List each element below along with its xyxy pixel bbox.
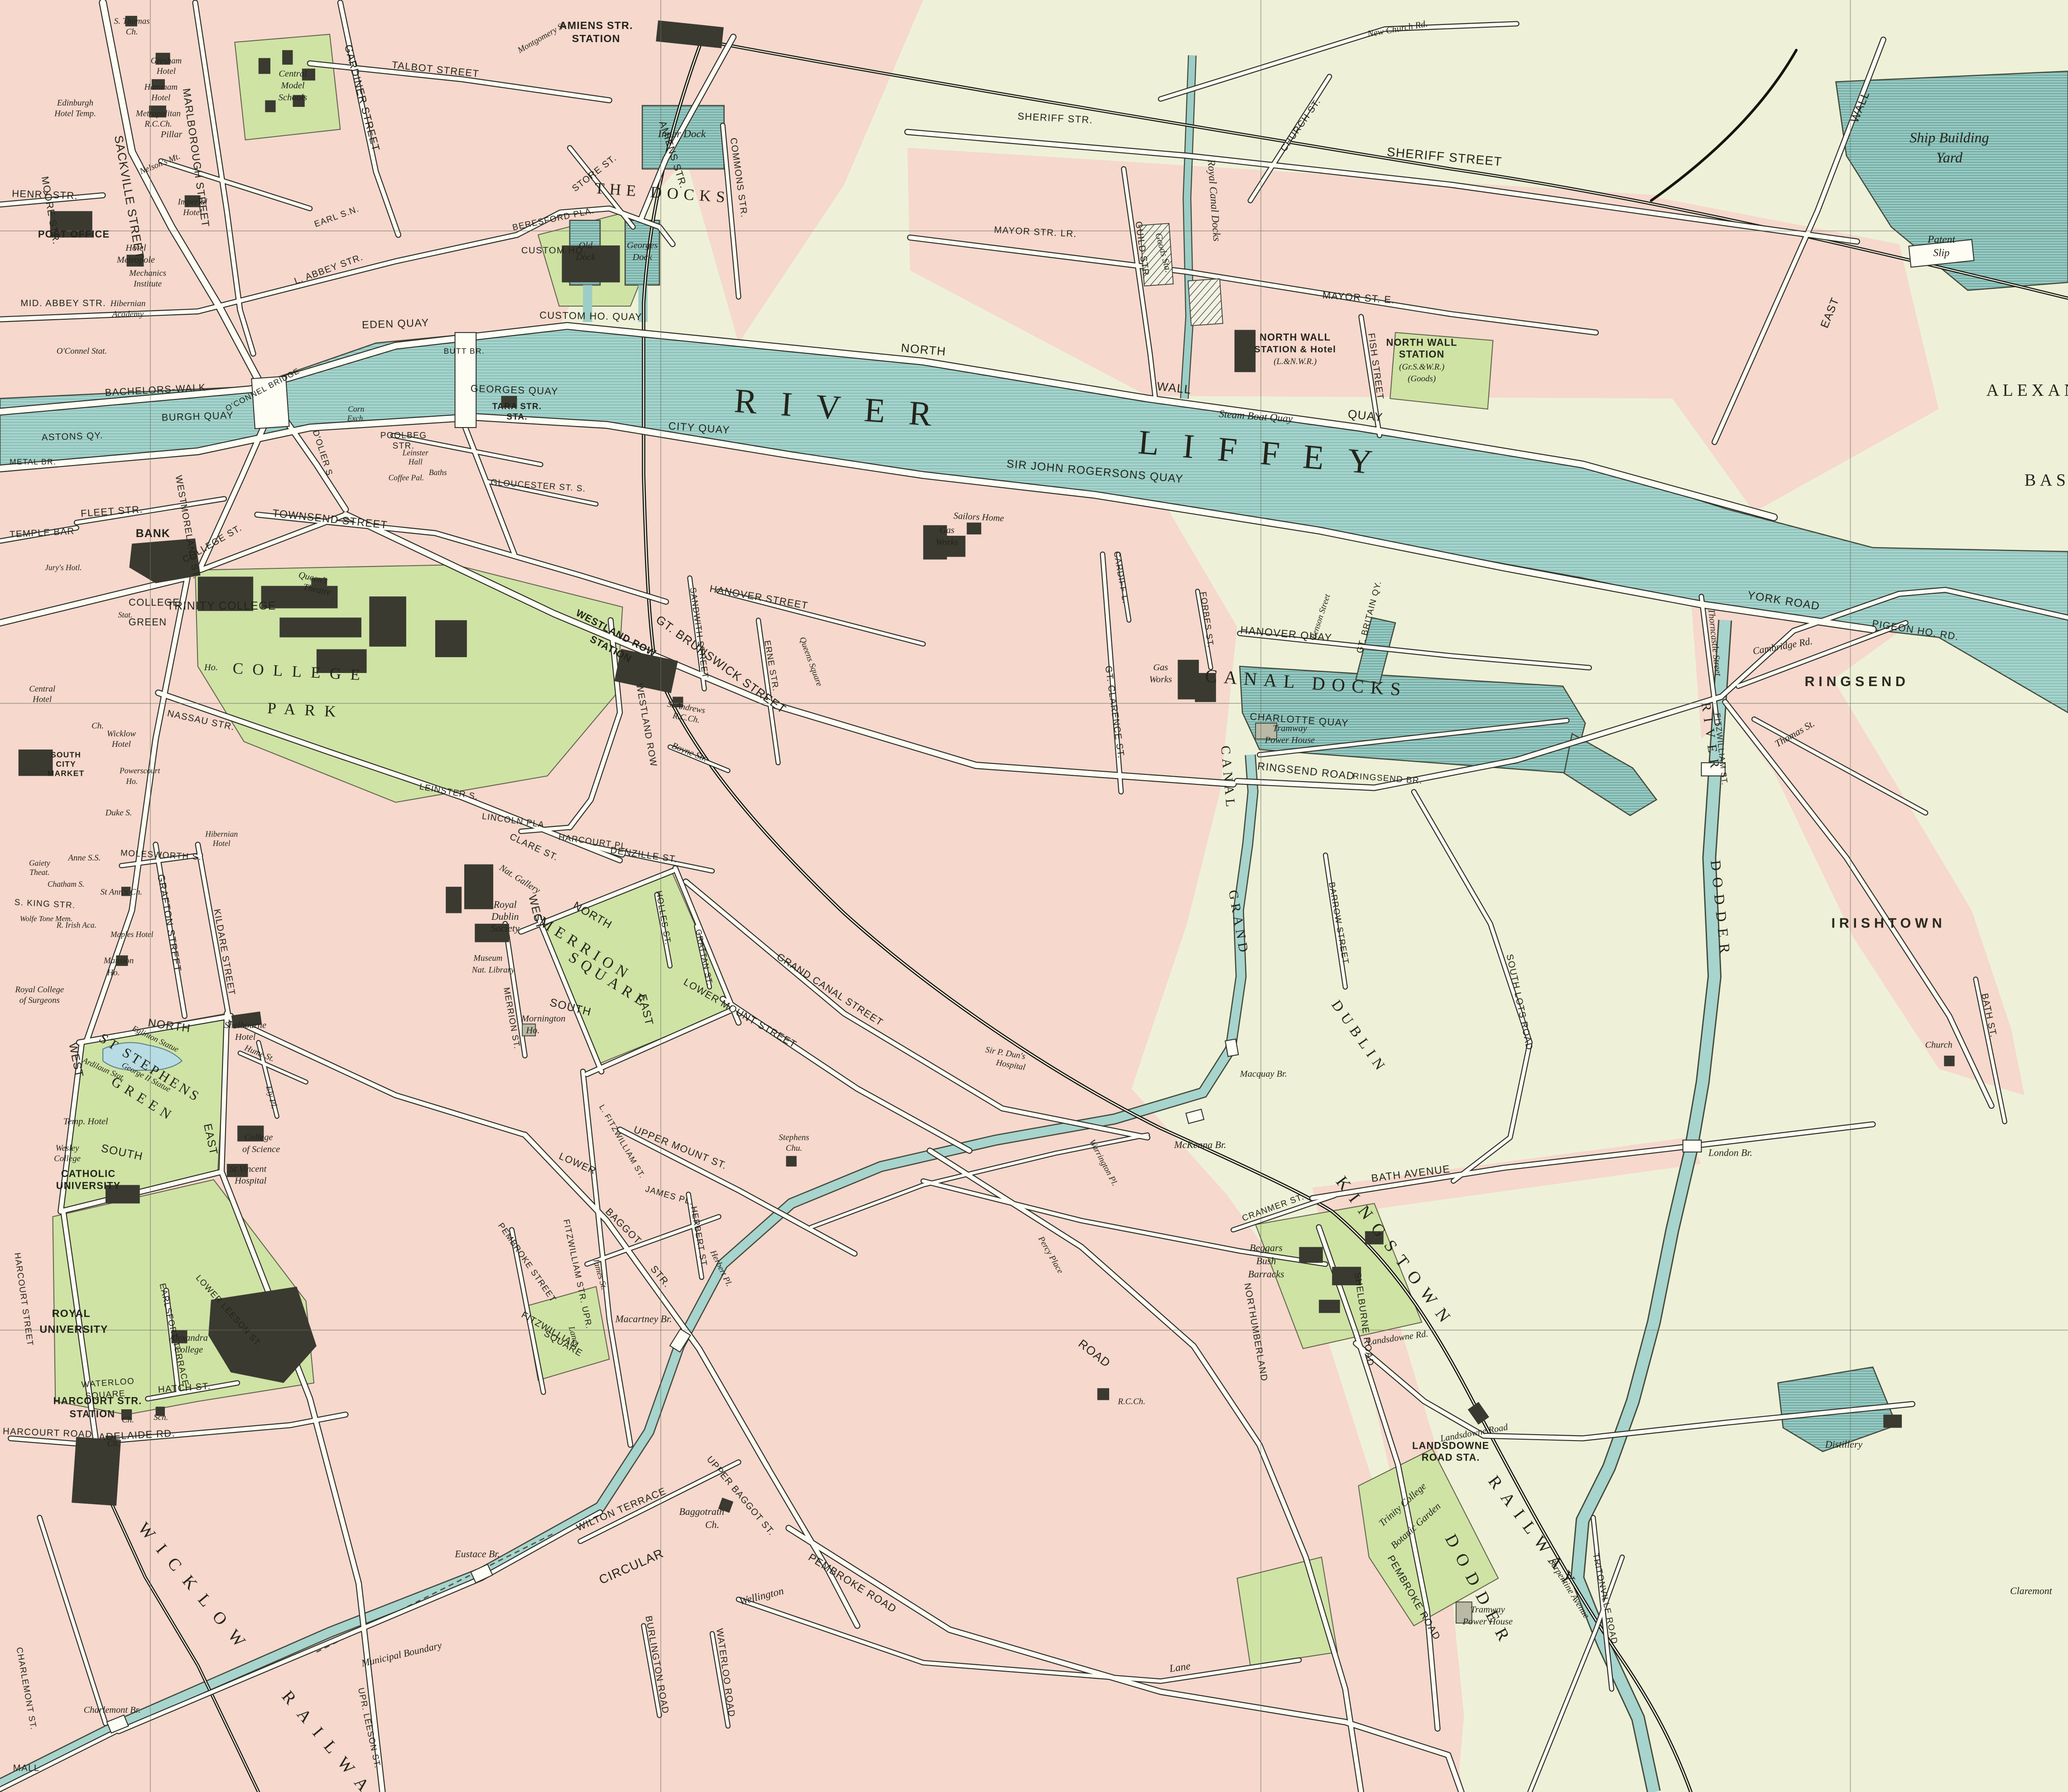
- map-label-stations: UNIVERSITY: [39, 1323, 108, 1335]
- map-label-streets: CUSTOM HO.: [521, 245, 587, 255]
- map-label-places: Ho.: [525, 1026, 539, 1036]
- map-label-places: London Br.: [1708, 1148, 1752, 1158]
- map-label-stations: STA.: [506, 413, 527, 422]
- map-label-places: Gaiety: [29, 858, 50, 867]
- map-label-water: Ship Building: [1909, 130, 1989, 146]
- leinster-house-building: [464, 865, 493, 909]
- map-label-places: Stat.: [118, 610, 133, 620]
- map-label-places: Mansion: [103, 956, 134, 966]
- map-label-places: Baths: [429, 468, 447, 477]
- map-label-stations: ROYAL: [52, 1307, 91, 1319]
- map-label-places: Central: [29, 684, 55, 694]
- map-label-places: Wicklow: [107, 729, 136, 739]
- map-label-water: ALEXANDRA: [1986, 381, 2068, 400]
- map-label-places: Imperial: [178, 197, 207, 207]
- map-label-places: St Ann's Ch.: [101, 888, 143, 897]
- map-label-places: Chu.: [786, 1143, 802, 1153]
- map-label-places: Nat. Library: [471, 965, 515, 975]
- map-label-places: Works: [936, 537, 958, 547]
- map-label-stations: STATION: [1399, 349, 1445, 360]
- map-label-places: Wolfe Tone Mem.: [20, 914, 72, 923]
- map-label-places: Royal: [493, 899, 517, 910]
- map-label-water: Distillery: [1825, 1439, 1863, 1450]
- map-label-places: Beggars: [1250, 1242, 1283, 1253]
- map-label-places: Wesley: [56, 1143, 79, 1153]
- map-label-places: Ho.: [204, 663, 218, 673]
- map-label-water: Patent: [1927, 234, 1955, 245]
- map-label-places: Ho.: [107, 968, 120, 977]
- map-label-places: of Science: [242, 1144, 280, 1154]
- map-label-places: of Surgeons: [19, 996, 60, 1005]
- map-label-streets: EDEN QUAY: [362, 317, 429, 331]
- map-label-places: Ch.: [122, 1415, 134, 1425]
- distillery-building: [1883, 1415, 1902, 1428]
- map-label-places: POOLBEG: [380, 431, 427, 440]
- map-label-districts: RINGSEND: [1804, 674, 1909, 689]
- map-label-places: Duke S.: [105, 808, 132, 818]
- map-label-streets: BUTT BR.: [444, 346, 485, 356]
- map-label-places: Metropolitan: [135, 109, 181, 118]
- map-label-places: Gas: [939, 525, 954, 535]
- map-label-places: Mornington: [521, 1014, 565, 1023]
- map-label-places: College: [244, 1133, 273, 1143]
- map-label-places: Hospital: [234, 1176, 267, 1186]
- map-label-places: St Vincent: [230, 1164, 267, 1174]
- map-label-places: R.C.Ch.: [1117, 1397, 1145, 1406]
- map-label-stations: NORTH WALL: [1260, 331, 1331, 343]
- map-label-streets: MALL: [13, 1763, 40, 1773]
- map-label-places: Pillar: [160, 130, 183, 139]
- map-label-places: Ch.: [126, 27, 138, 37]
- map-label-places: Stephens: [779, 1133, 809, 1143]
- map-label-places: STR.: [393, 442, 415, 451]
- map-label-water: Dock: [632, 252, 653, 262]
- map-label-stations: POST OFFICE: [38, 228, 110, 240]
- map-label-places: Hotel: [235, 1032, 256, 1042]
- map-label-places: Hotel: [156, 67, 176, 76]
- map-label-water: BASIN: [2025, 471, 2068, 490]
- map-label-water: Yard: [1936, 149, 1963, 165]
- map-label-places: Schools: [279, 92, 307, 102]
- map-label-places: R.C.Ch.: [144, 120, 172, 129]
- map-label-places: Claremont: [2010, 1585, 2052, 1596]
- map-label-places: Jury's Hotl.: [45, 563, 82, 572]
- map-label-places: Tramway: [1471, 1605, 1505, 1615]
- map-label-places: Hotel: [125, 243, 146, 253]
- map-label-places: Hotel Temp.: [54, 109, 96, 118]
- map-label-places: Eustace Br.: [454, 1548, 500, 1559]
- map-label-places: Hibernian: [205, 829, 238, 838]
- map-label-places: College: [54, 1154, 81, 1163]
- map-label-streets: ROAD STA.: [1422, 1452, 1480, 1463]
- map-label-stations: NORTH WALL: [1386, 336, 1457, 348]
- map-label-places: Dublin: [491, 911, 519, 922]
- map-label-stations: UNIVERSITY: [56, 1180, 121, 1191]
- map-label-places: Hammam: [144, 82, 178, 92]
- map-label-water: Slip: [1933, 247, 1949, 259]
- map-label-places: Ch.: [107, 1439, 120, 1449]
- map-label-stations: STATION: [572, 33, 620, 44]
- map-label-places: Temp. Hotel: [63, 1117, 108, 1127]
- map-label-places: S. Thomas: [114, 16, 150, 26]
- map-label-stations: (Goods): [1408, 374, 1436, 384]
- map-label-places: Bush: [1256, 1255, 1276, 1266]
- map-label-places: Ch.: [91, 721, 104, 730]
- stephens-church-building: [786, 1156, 797, 1167]
- map-label-streets: MID. ABBEY STR.: [20, 298, 106, 308]
- map-label-places: O'Connel Stat.: [57, 346, 107, 356]
- map-label-places: Model: [280, 81, 304, 91]
- map-label-stations: (L.&N.W.R.): [1274, 357, 1317, 366]
- map-label-places: Hotel: [151, 93, 170, 102]
- map-label-streets: GREEN: [129, 616, 167, 628]
- dublin-map: RIVERLIFFEYCANAL DOCKSGRANDCANALDUBLINRI…: [0, 0, 2068, 1792]
- map-label-places: Society: [491, 923, 519, 934]
- map-label-stations: TARA STR.: [492, 402, 542, 411]
- map-label-places: Edinburgh: [57, 98, 93, 108]
- map-label-places: Maples Hotel: [110, 930, 154, 939]
- map-label-places: Hotel: [183, 208, 202, 217]
- map-label-places: Anne S.S.: [67, 853, 101, 863]
- map-label-places: Ho.: [125, 777, 138, 786]
- map-label-places: Gresham: [151, 56, 182, 66]
- map-label-places: Hotel: [111, 740, 131, 749]
- map-label-places: Hotel: [212, 839, 231, 848]
- map-label-places: Mechanics: [129, 269, 166, 278]
- map-label-streets: ASTONS QY.: [42, 431, 104, 443]
- map-label-places: Powerscourt: [119, 766, 160, 775]
- map-label-stations: MARKET: [48, 769, 85, 778]
- map-label-places: Hibernian: [110, 299, 146, 308]
- map-label-places: Macartney Br.: [615, 1314, 672, 1325]
- map-label-stations: AMIENS STR.: [559, 19, 633, 31]
- map-label-stations: STATION & Hotel: [1254, 345, 1336, 355]
- map-label-streets: METAL BR.: [10, 457, 56, 466]
- map-label-stations: CATHOLIC: [61, 1168, 115, 1179]
- sailors-home-building: [967, 523, 981, 534]
- map-label-places: Power House: [1462, 1617, 1513, 1627]
- map-label-streets: CUSTOM HO. QUAY: [539, 309, 643, 322]
- map-label-water: Georges: [627, 240, 658, 250]
- macquay-bridge: [1225, 1039, 1238, 1056]
- map-label-stations: SOUTH: [51, 750, 81, 759]
- map-label-places: Coffee Pal.: [389, 473, 424, 482]
- map-label-stations: TRINITY COLLEGE: [167, 600, 276, 612]
- map-label-places: Hall: [408, 457, 423, 466]
- map-label-places: Chatham S.: [48, 879, 85, 889]
- north-wall-station-building: [1235, 330, 1256, 372]
- map-label-places: Metropole: [116, 255, 155, 265]
- map-label-places: Charlemont Br.: [84, 1705, 141, 1715]
- map-label-places: Central: [279, 69, 307, 79]
- map-label-places: Macquay Br.: [1240, 1069, 1287, 1079]
- map-label-places: Gas: [1153, 663, 1168, 673]
- map-label-places: Exch.: [347, 414, 365, 423]
- london-bridge: [1683, 1140, 1702, 1152]
- map-label-places: Ch.: [705, 1519, 719, 1530]
- map-label-places: Hotel: [32, 695, 52, 704]
- map-label-places: Barracks: [1248, 1269, 1284, 1280]
- map-canvas: RIVERLIFFEYCANAL DOCKSGRANDCANALDUBLINRI…: [0, 0, 2068, 1792]
- map-label-places: Tramway: [1273, 723, 1308, 733]
- map-label-places: Royal College: [15, 985, 64, 994]
- map-label-places: Institute: [133, 279, 162, 288]
- irishtown-church-building: [1944, 1056, 1954, 1066]
- map-label-stations: BANK: [136, 528, 170, 540]
- map-label-places: College: [174, 1345, 203, 1355]
- map-label-places: Baggotrath: [679, 1506, 724, 1517]
- map-label-places: McKenna Br.: [1173, 1139, 1226, 1150]
- map-label-places: Works: [1149, 674, 1172, 684]
- map-label-stations: (Gr.S.&W.R.): [1399, 362, 1444, 372]
- map-label-places: Corn: [348, 404, 364, 413]
- map-label-places: Academy: [111, 309, 144, 319]
- map-label-places: Sch.: [154, 1412, 168, 1422]
- map-label-places: Museum: [473, 953, 502, 963]
- map-label-places: Power House: [1265, 735, 1315, 745]
- map-label-stations: STATION: [69, 1408, 115, 1419]
- map-label-stations: CITY: [56, 759, 76, 769]
- map-label-places: Church: [1925, 1040, 1952, 1050]
- map-label-places: Shelbourne: [224, 1020, 266, 1030]
- map-label-districts: IRISHTOWN: [1831, 915, 1946, 931]
- map-label-places: Alexandra: [168, 1333, 208, 1343]
- map-label-stations: HARCOURT STR.: [53, 1395, 142, 1406]
- map-label-places: Theat.: [29, 868, 49, 877]
